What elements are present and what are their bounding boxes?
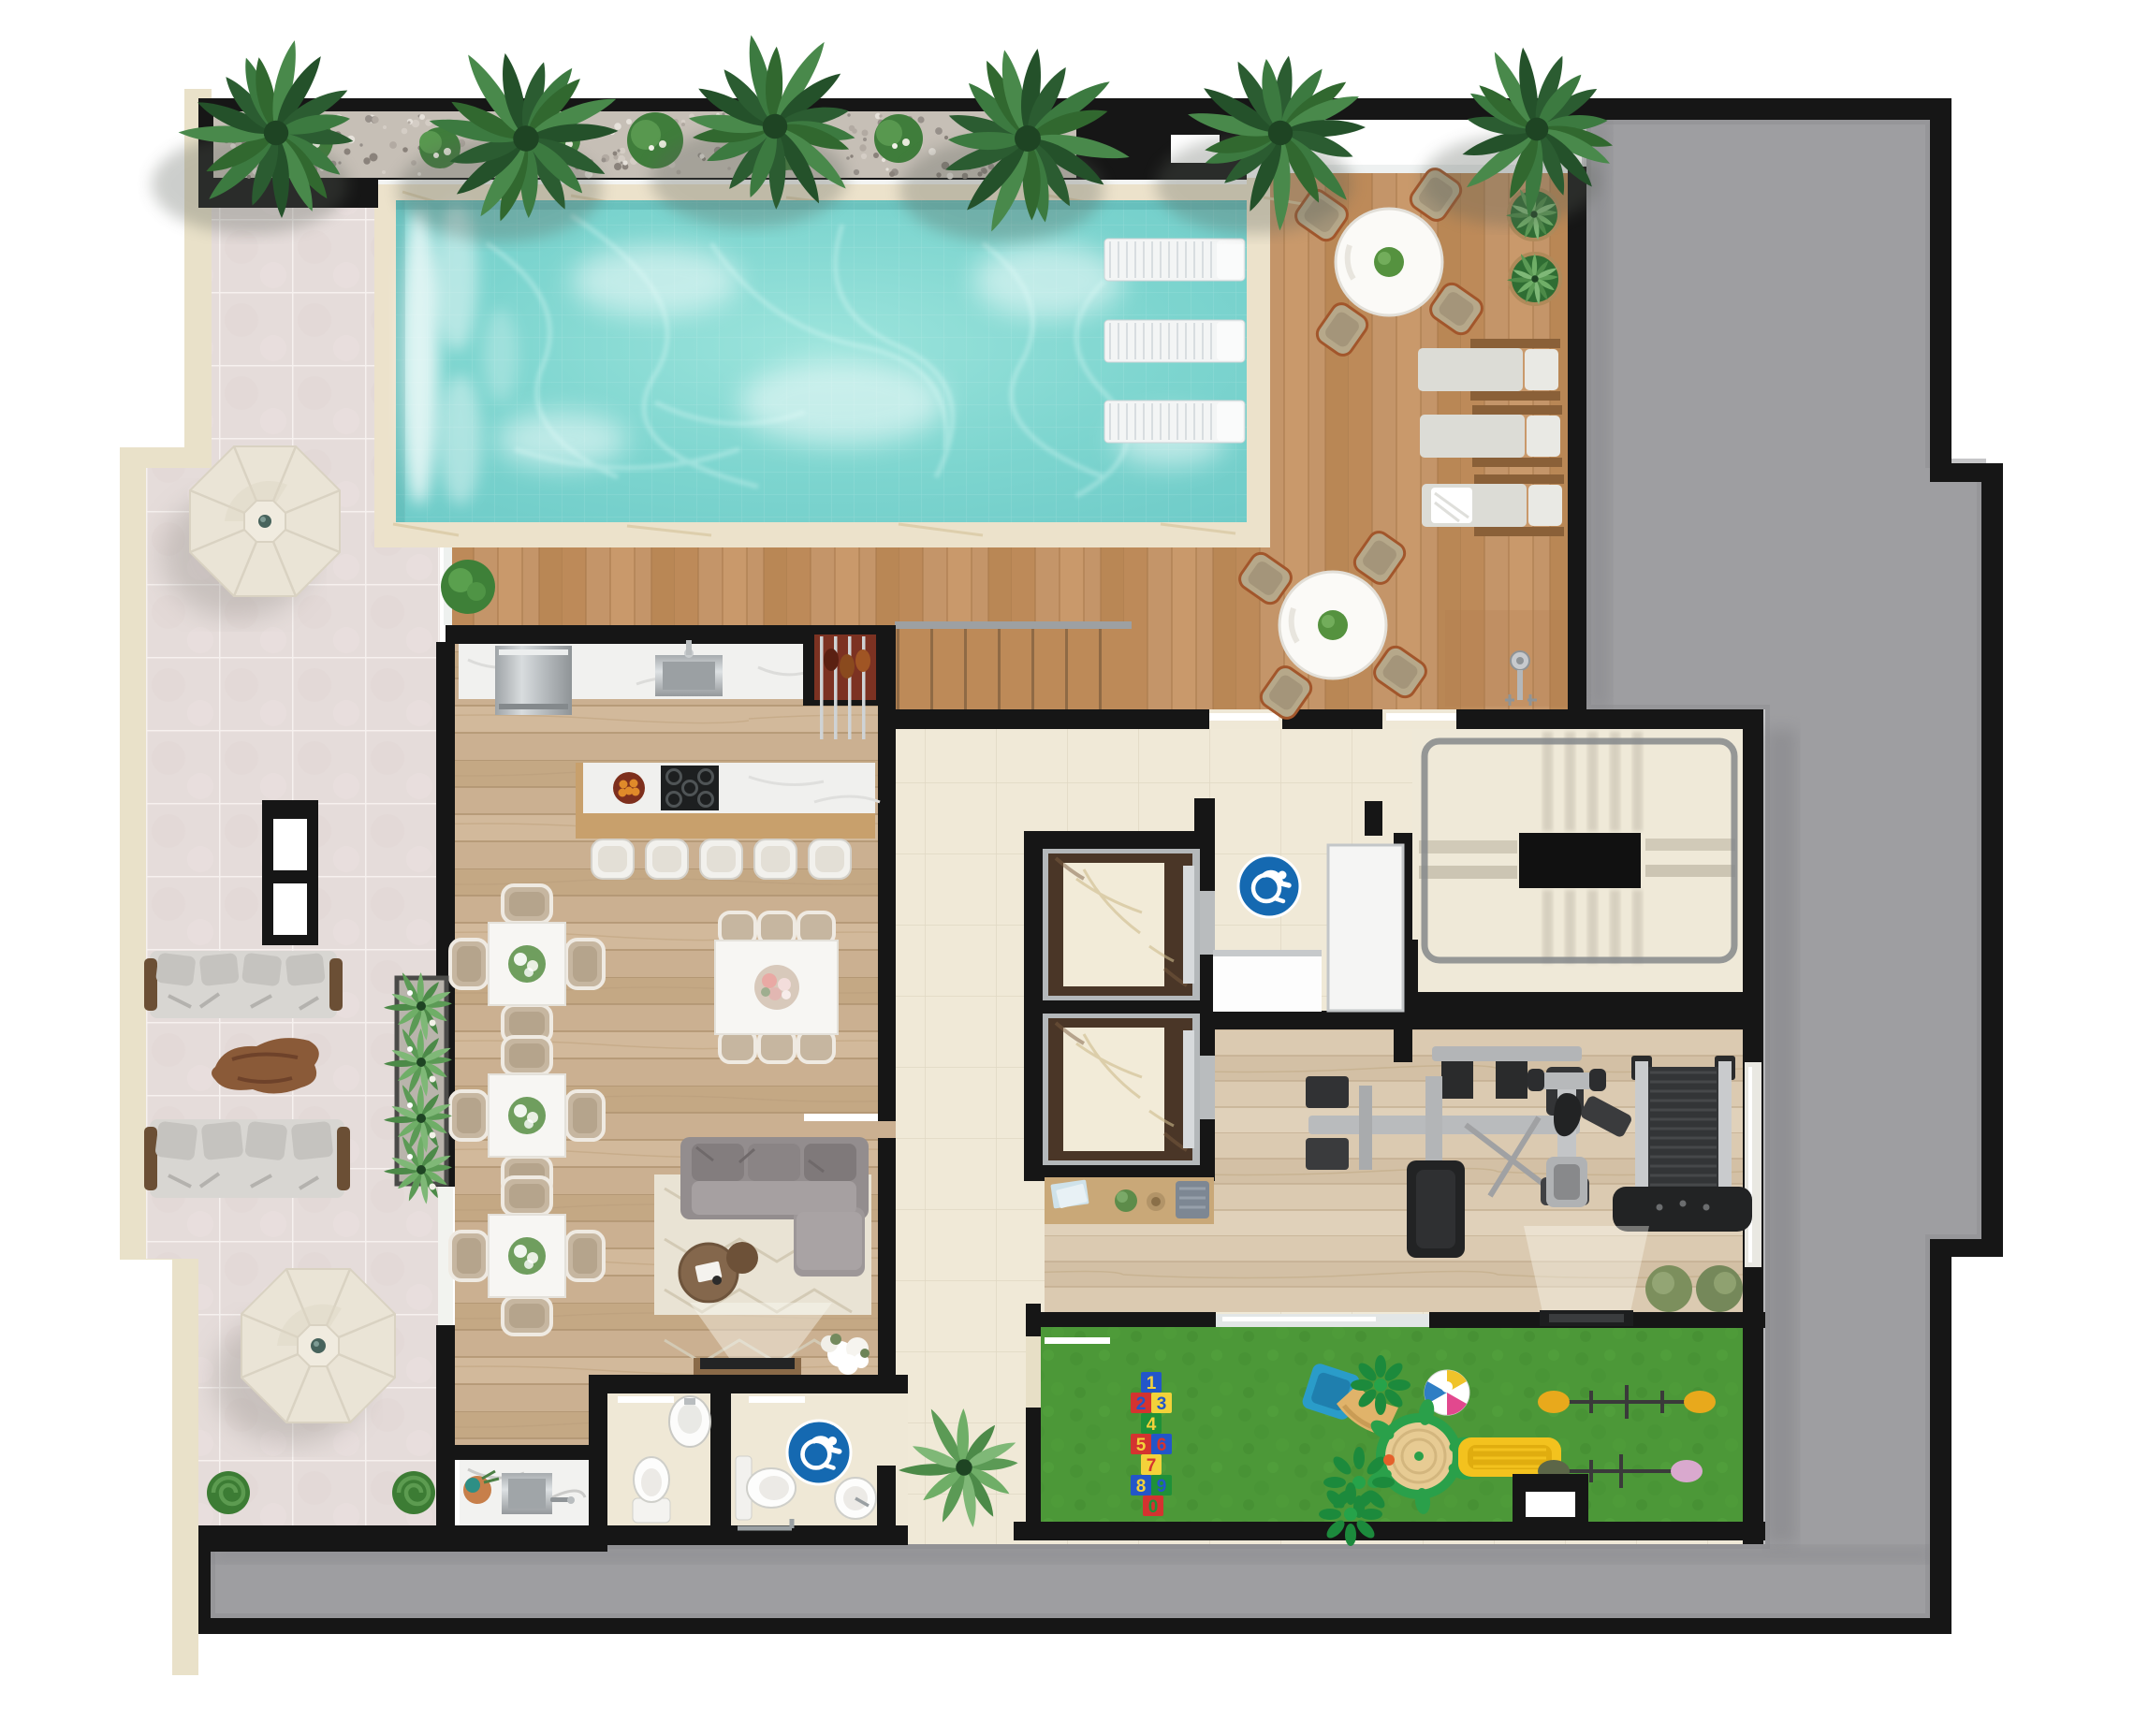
svg-text:8: 8: [1136, 1477, 1147, 1496]
svg-text:5: 5: [1136, 1436, 1147, 1455]
svg-text:0: 0: [1148, 1497, 1159, 1517]
svg-text:1: 1: [1147, 1374, 1157, 1393]
svg-text:9: 9: [1157, 1477, 1167, 1496]
svg-text:7: 7: [1147, 1456, 1157, 1476]
svg-text:2: 2: [1136, 1394, 1147, 1414]
svg-text:4: 4: [1147, 1415, 1157, 1435]
svg-text:3: 3: [1157, 1394, 1167, 1414]
svg-text:6: 6: [1157, 1436, 1167, 1455]
